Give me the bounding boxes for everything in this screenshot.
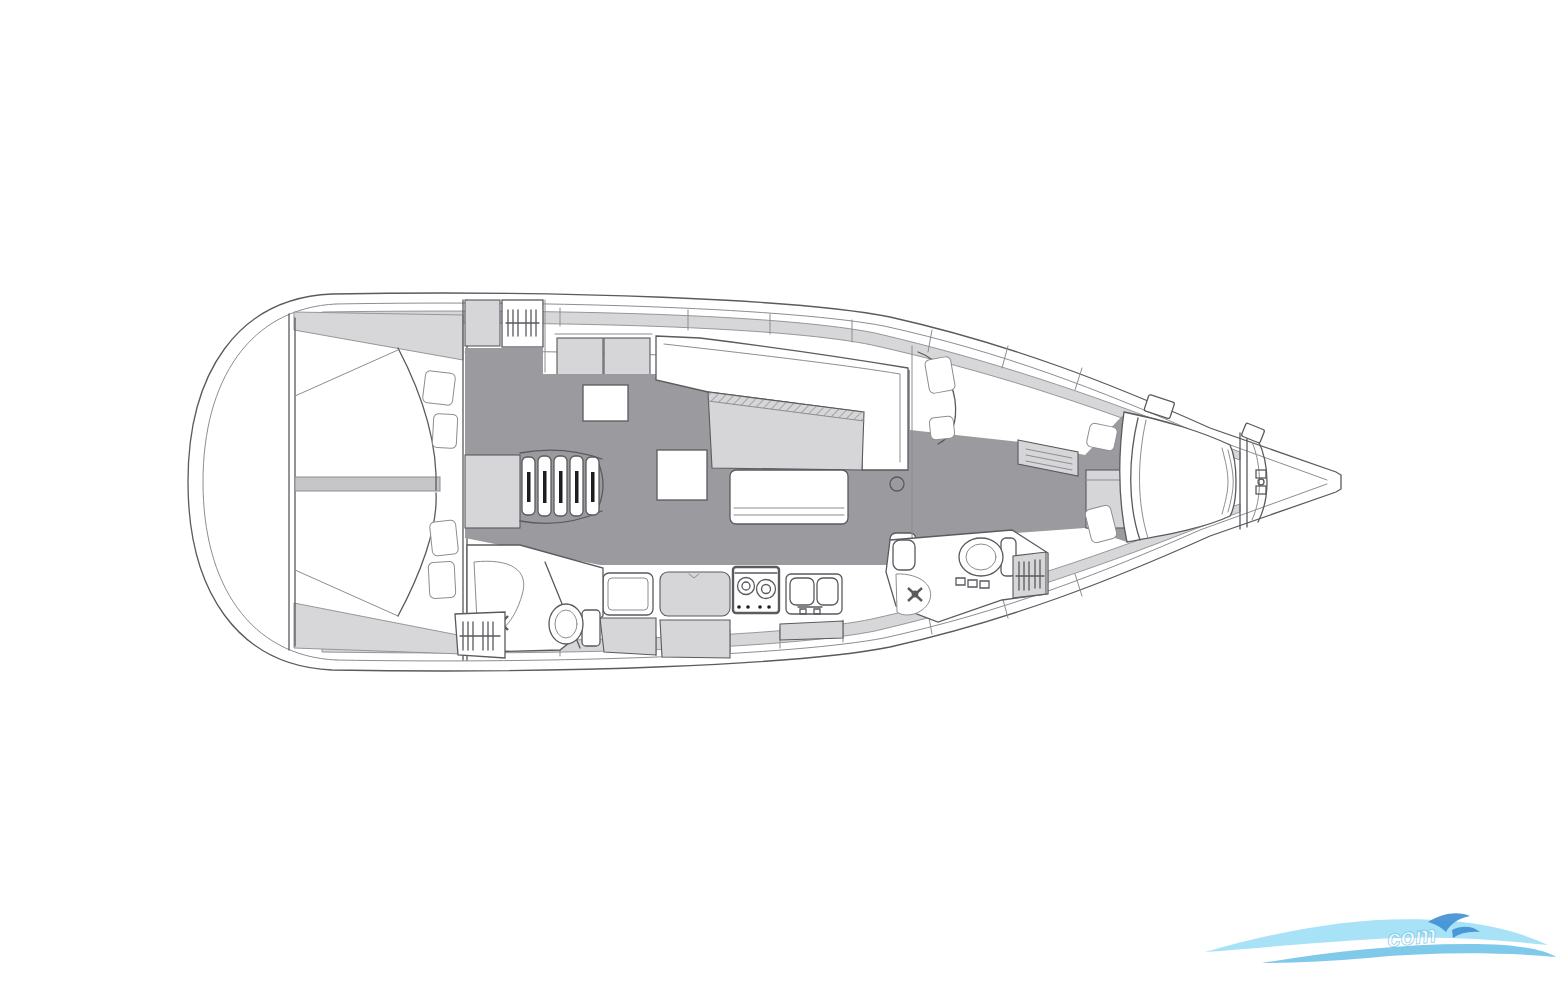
pillow (432, 413, 458, 448)
pillow (924, 356, 956, 394)
sink-icon (786, 574, 842, 614)
deck-hatch-aft-top (502, 300, 543, 347)
vent-hatch-fwd (1013, 552, 1046, 598)
pillow (429, 520, 458, 557)
watermark-logo: com (1205, 913, 1556, 963)
sideboard (555, 334, 652, 376)
vent-hatch-aft-bottom (455, 612, 505, 658)
top-panel (465, 300, 500, 346)
steps-base (465, 455, 520, 528)
fwd-head-sink (893, 540, 915, 570)
aft-cabin-divider (295, 477, 440, 491)
worktop (660, 572, 730, 616)
logo-text: com (1386, 920, 1438, 952)
table-locker (657, 450, 707, 500)
yacht-layout-plan: com (0, 0, 1560, 981)
plan-drawing: com (0, 0, 1560, 981)
pillow (929, 416, 955, 440)
chart-table (583, 385, 628, 421)
step-treads (522, 456, 599, 516)
pillow (422, 370, 456, 405)
toilet-icon (549, 604, 600, 646)
pillow (428, 561, 456, 598)
pillow (1086, 422, 1118, 451)
salon-bench (730, 470, 848, 524)
